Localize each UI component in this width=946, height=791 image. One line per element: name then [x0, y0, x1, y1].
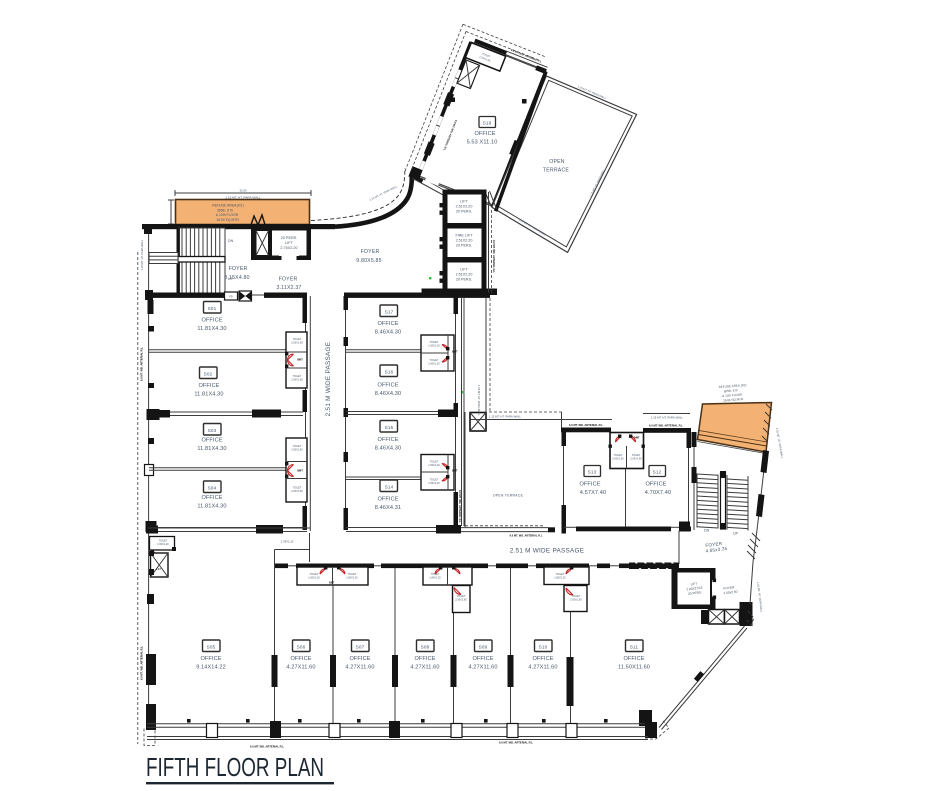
- svg-text:4.27X11.60: 4.27X11.60: [468, 664, 497, 670]
- svg-text:S04: S04: [208, 485, 217, 490]
- svg-text:2.51 M WIDE PASSAGE: 2.51 M WIDE PASSAGE: [325, 342, 332, 417]
- svg-text:8.46X4.30: 8.46X4.30: [375, 445, 401, 451]
- svg-text:OFFICE: OFFICE: [377, 437, 398, 443]
- svg-text:S12: S12: [653, 469, 662, 474]
- svg-text:OFFICE: OFFICE: [198, 383, 219, 389]
- svg-text:PD: PD: [229, 295, 233, 299]
- svg-text:OFFICE: OFFICE: [472, 656, 493, 662]
- svg-text:UP: UP: [733, 532, 739, 536]
- svg-text:2.51X2.20: 2.51X2.20: [456, 205, 473, 209]
- svg-text:S05: S05: [207, 644, 216, 649]
- svg-text:2.78X1.20: 2.78X1.20: [281, 540, 294, 544]
- svg-text:OPEN: OPEN: [549, 159, 565, 165]
- svg-text:4.27X11.60: 4.27X11.60: [286, 664, 315, 670]
- svg-text:20 PERS.: 20 PERS.: [456, 210, 472, 214]
- svg-text:BMT: BMT: [297, 357, 303, 361]
- svg-text:OFFICE: OFFICE: [200, 656, 221, 662]
- svg-text:6.0 MT. WD. ARTERIAL R.L: 6.0 MT. WD. ARTERIAL R.L: [250, 745, 284, 749]
- svg-text:2.00X1.60: 2.00X1.60: [291, 490, 303, 493]
- svg-text:2.00X1.60: 2.00X1.60: [612, 458, 624, 461]
- svg-text:TOILET: TOILET: [310, 573, 319, 576]
- svg-text:2.00X1.60: 2.00X1.60: [570, 599, 582, 602]
- svg-text:LIFT: LIFT: [460, 200, 468, 204]
- svg-text:1.60X1.20: 1.60X1.20: [428, 482, 440, 485]
- svg-text:S02: S02: [204, 371, 213, 376]
- svg-text:S17: S17: [385, 309, 394, 314]
- svg-text:OFFICE: OFFICE: [349, 656, 370, 662]
- svg-text:& 12th FLOOR: & 12th FLOOR: [216, 213, 239, 217]
- svg-text:OFFICE: OFFICE: [474, 131, 495, 137]
- svg-text:OFFICE: OFFICE: [623, 656, 644, 662]
- svg-text:TOILET: TOILET: [293, 338, 302, 341]
- svg-text:1.15 MT. HT. PARA.WALL: 1.15 MT. HT. PARA.WALL: [489, 415, 522, 419]
- svg-text:4.27X11.60: 4.27X11.60: [345, 664, 374, 670]
- svg-text:8.46X4.30: 8.46X4.30: [375, 329, 401, 335]
- svg-text:1.60X1.20: 1.60X1.20: [428, 345, 440, 348]
- svg-text:BMT: BMT: [452, 350, 458, 354]
- svg-text:FIFTH FLOOR PLAN: FIFTH FLOOR PLAN: [146, 754, 324, 782]
- svg-text:18.00 SQ.MTR.: 18.00 SQ.MTR.: [216, 218, 240, 222]
- svg-text:OFFICE: OFFICE: [414, 656, 435, 662]
- svg-text:1.60X1.20: 1.60X1.20: [428, 464, 440, 467]
- svg-text:1.80X1.20: 1.80X1.20: [429, 577, 441, 580]
- svg-text:2.51X2.20: 2.51X2.20: [456, 239, 473, 243]
- svg-text:OFFICE: OFFICE: [201, 495, 222, 501]
- svg-text:2.00X1.60: 2.00X1.60: [291, 342, 303, 345]
- svg-text:6.0 MT. WD. ARTERIAL R.L: 6.0 MT. WD. ARTERIAL R.L: [510, 534, 543, 538]
- svg-text:S07: S07: [356, 644, 365, 649]
- svg-text:OFFICE: OFFICE: [377, 497, 398, 503]
- svg-text:S15: S15: [385, 425, 394, 430]
- svg-text:TOILET: TOILET: [430, 461, 439, 464]
- svg-text:1.80X1.20: 1.80X1.20: [554, 577, 566, 580]
- svg-text:1.15 MT. HT. PARA.WALL: 1.15 MT. HT. PARA.WALL: [140, 239, 144, 270]
- svg-text:4.57X7.40: 4.57X7.40: [580, 490, 606, 496]
- svg-text:6.0 MT. WD. ARTERIAL R.L: 6.0 MT. WD. ARTERIAL R.L: [140, 347, 144, 381]
- svg-text:OFFICE: OFFICE: [645, 482, 666, 488]
- svg-text:LIFT: LIFT: [285, 241, 293, 245]
- svg-text:6.0 MT. WD. ARTERIAL R.L: 6.0 MT. WD. ARTERIAL R.L: [492, 240, 496, 273]
- svg-text:20 PERS.: 20 PERS.: [456, 278, 472, 282]
- svg-text:S14: S14: [385, 484, 394, 489]
- svg-text:8.46X4.31: 8.46X4.31: [375, 505, 401, 511]
- svg-text:S01: S01: [208, 306, 217, 311]
- svg-text:DN: DN: [704, 529, 710, 533]
- svg-text:S16: S16: [385, 369, 394, 374]
- svg-text:TOILET: TOILET: [159, 540, 168, 543]
- svg-text:1.60X1.20: 1.60X1.20: [157, 543, 169, 546]
- svg-text:32.00: 32.00: [240, 189, 247, 193]
- svg-text:20 PERS.: 20 PERS.: [281, 236, 298, 240]
- svg-text:TOILET: TOILET: [614, 454, 623, 457]
- svg-text:S11: S11: [630, 644, 639, 649]
- svg-text:S03: S03: [208, 428, 217, 433]
- svg-text:2.75X2.20: 2.75X2.20: [280, 246, 297, 250]
- svg-text:S13: S13: [588, 469, 597, 474]
- svg-text:1.60X1.20: 1.60X1.20: [428, 363, 440, 366]
- svg-text:4.27X11.60: 4.27X11.60: [528, 664, 557, 670]
- svg-text:3.15X4.80: 3.15X4.80: [224, 275, 249, 281]
- svg-text:11.81X4.30: 11.81X4.30: [197, 326, 226, 332]
- svg-text:LIFT: LIFT: [157, 568, 162, 571]
- svg-text:TOILET: TOILET: [430, 341, 439, 344]
- svg-text:9.80X5.85: 9.80X5.85: [356, 258, 381, 264]
- svg-text:20 PERS.: 20 PERS.: [456, 244, 472, 248]
- svg-text:REFUGE AREA (R1): REFUGE AREA (R1): [212, 204, 243, 208]
- svg-text:2.00X1.60: 2.00X1.60: [455, 599, 467, 602]
- svg-text:TOILET: TOILET: [457, 595, 466, 598]
- svg-text:6.0 MT. WD. ARTERIAL R.L: 6.0 MT. WD. ARTERIAL R.L: [649, 424, 683, 428]
- svg-text:S06: S06: [297, 644, 306, 649]
- svg-text:9.14X14.22: 9.14X14.22: [196, 664, 226, 670]
- svg-text:FOYER: FOYER: [229, 266, 248, 272]
- svg-text:6.0 MT. WD. ARTERIAL R.L: 6.0 MT. WD. ARTERIAL R.L: [499, 741, 533, 745]
- svg-text:TOILET: TOILET: [293, 375, 302, 378]
- svg-text:OFFICE: OFFICE: [532, 656, 553, 662]
- svg-text:11.81X4.30: 11.81X4.30: [197, 446, 226, 452]
- svg-text:BMT: BMT: [297, 468, 303, 472]
- svg-text:OFFICE: OFFICE: [290, 656, 311, 662]
- svg-text:DN: DN: [228, 239, 234, 243]
- svg-text:OFFICE: OFFICE: [201, 318, 222, 324]
- svg-text:6.0 MT. WD. ARTERIAL R.L: 6.0 MT. WD. ARTERIAL R.L: [140, 646, 144, 680]
- svg-text:11.81X4.30: 11.81X4.30: [197, 503, 226, 509]
- svg-text:FIRE LIFT: FIRE LIFT: [455, 234, 473, 238]
- svg-text:OPEN TERRACE: OPEN TERRACE: [493, 494, 524, 498]
- svg-text:OFFICE: OFFICE: [201, 438, 222, 444]
- svg-text:8.46X4.30: 8.46X4.30: [375, 391, 401, 397]
- svg-text:@5th, 8 th: @5th, 8 th: [217, 208, 233, 212]
- svg-text:1.15 MT. HT. PARA.WALL: 1.15 MT. HT. PARA.WALL: [477, 385, 481, 416]
- svg-text:OFFICE: OFFICE: [579, 482, 600, 488]
- svg-text:1.80X1.20: 1.80X1.20: [308, 577, 320, 580]
- svg-text:BMT: BMT: [452, 469, 458, 473]
- svg-text:BMT: BMT: [329, 582, 335, 585]
- svg-text:FOYER: FOYER: [361, 249, 380, 255]
- svg-text:11.50X11.60: 11.50X11.60: [618, 664, 650, 670]
- svg-text:2.00X1.60: 2.00X1.60: [630, 458, 642, 461]
- svg-text:TOILET: TOILET: [293, 445, 302, 448]
- svg-text:TOILET: TOILET: [632, 454, 641, 457]
- svg-text:4.27X11.60: 4.27X11.60: [410, 664, 439, 670]
- svg-text:TOILET: TOILET: [556, 573, 565, 576]
- svg-text:OFFICE: OFFICE: [377, 383, 398, 389]
- svg-text:TOILET: TOILET: [430, 359, 439, 362]
- svg-text:1.15 MT. HT. PARA.WALL: 1.15 MT. HT. PARA.WALL: [651, 416, 684, 420]
- svg-text:TOILET: TOILET: [572, 595, 581, 598]
- svg-text:2.00X1.60: 2.00X1.60: [291, 379, 303, 382]
- svg-text:S08: S08: [421, 644, 430, 649]
- svg-text:TOILET: TOILET: [293, 487, 302, 490]
- svg-text:OFFICE: OFFICE: [377, 321, 398, 327]
- svg-text:2.00X1.60: 2.00X1.60: [291, 449, 303, 452]
- svg-text:4.70X7.40: 4.70X7.40: [645, 490, 671, 496]
- svg-text:2.51 M WIDE PASSAGE: 2.51 M WIDE PASSAGE: [510, 548, 585, 555]
- svg-text:6.0 MT. WD. ARTERIAL R.L: 6.0 MT. WD. ARTERIAL R.L: [569, 423, 603, 427]
- svg-text:TOILET: TOILET: [430, 479, 439, 482]
- svg-text:S18: S18: [483, 120, 492, 125]
- svg-text:LIFT: LIFT: [460, 268, 468, 272]
- svg-text:TERRACE: TERRACE: [543, 168, 570, 174]
- svg-text:FOYER: FOYER: [279, 277, 298, 283]
- svg-text:S10: S10: [539, 644, 548, 649]
- svg-text:TOILET: TOILET: [348, 573, 357, 576]
- svg-text:6.0 MT. WD. ARTERIAL R.L: 6.0 MT. WD. ARTERIAL R.L: [458, 490, 462, 523]
- svg-text:1.80X1.20: 1.80X1.20: [346, 577, 358, 580]
- svg-text:5.53 X11.10: 5.53 X11.10: [467, 140, 498, 146]
- svg-text:3.11X2.37: 3.11X2.37: [276, 285, 301, 291]
- svg-text:11.81X4.30: 11.81X4.30: [194, 391, 223, 397]
- svg-text:S09: S09: [479, 644, 488, 649]
- svg-text:2.51X2.20: 2.51X2.20: [456, 273, 473, 277]
